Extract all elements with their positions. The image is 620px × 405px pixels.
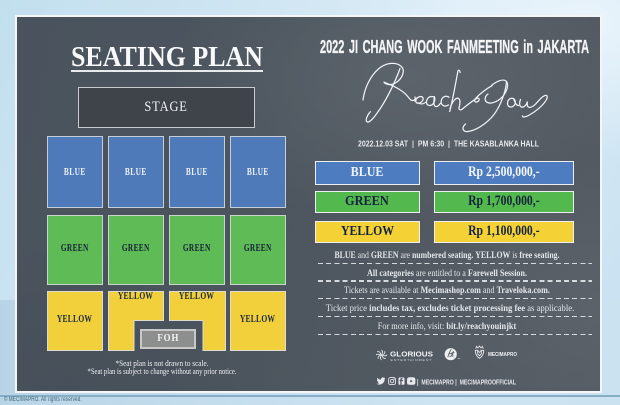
svg-text:| MECIMAPRO | MECIMAPROOFFIC: | MECIMAPRO | MECIMAPROOFFICIAL	[417, 378, 516, 387]
